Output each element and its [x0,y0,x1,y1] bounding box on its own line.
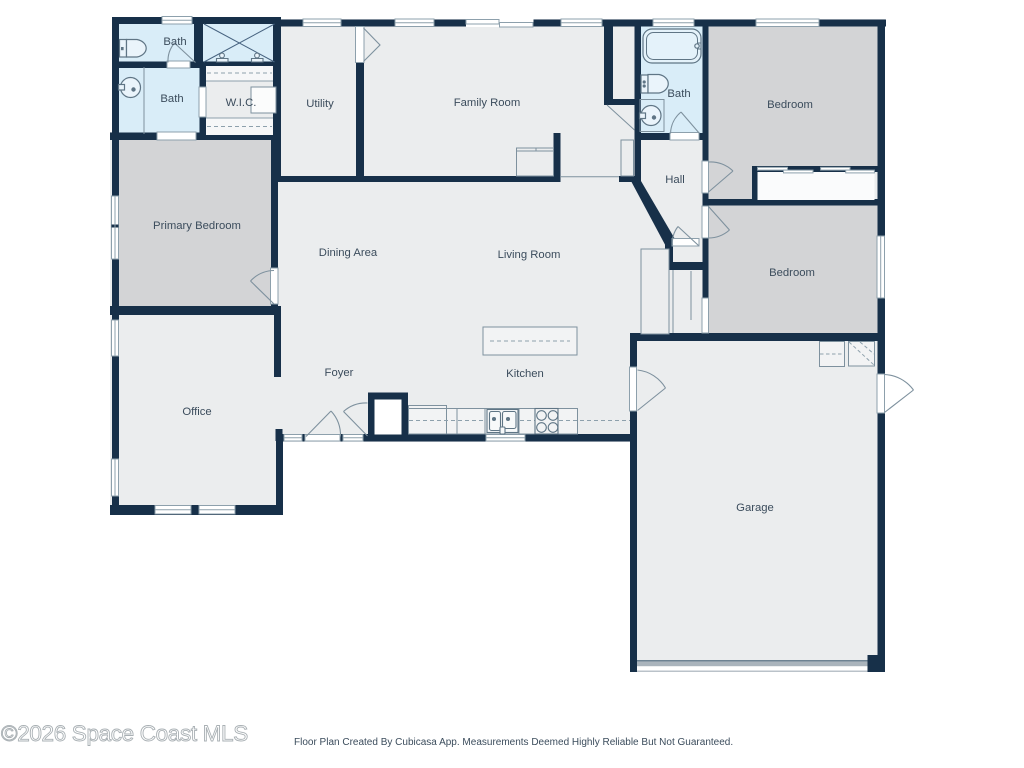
svg-text:Family Room: Family Room [454,97,521,109]
svg-text:Hall: Hall [665,174,684,186]
svg-text:Bedroom: Bedroom [767,99,813,111]
svg-text:Foyer: Foyer [325,367,354,379]
svg-text:Office: Office [182,406,211,418]
svg-text:©2026 Space Coast MLS: ©2026 Space Coast MLS [1,721,248,746]
svg-text:Bedroom: Bedroom [769,267,815,279]
svg-text:Kitchen: Kitchen [506,368,544,380]
svg-text:W.I.C.: W.I.C. [226,97,257,109]
svg-text:Bath: Bath [160,93,183,105]
svg-text:Primary Bedroom: Primary Bedroom [153,220,241,232]
svg-text:Bath: Bath [667,88,690,100]
svg-text:Floor Plan Created By Cubicasa: Floor Plan Created By Cubicasa App. Meas… [294,737,733,748]
svg-text:Utility: Utility [306,98,334,110]
svg-text:Dining Area: Dining Area [319,247,378,259]
svg-text:Living Room: Living Room [498,249,561,261]
svg-text:Bath: Bath [163,36,186,48]
svg-text:Garage: Garage [736,502,774,514]
